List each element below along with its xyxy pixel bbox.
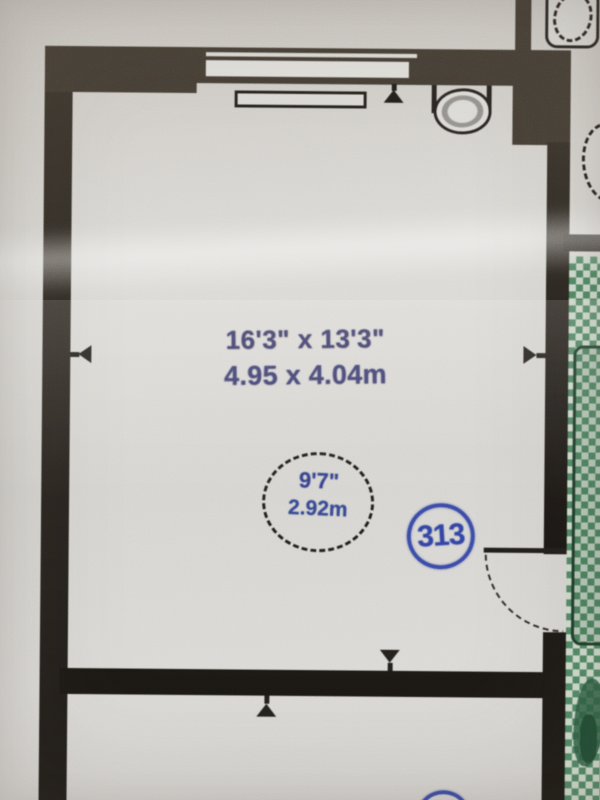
- radiator-icon: [235, 90, 367, 108]
- dark-tile-patch-inner: [580, 714, 597, 762]
- wall-marker-top-icon: [384, 90, 404, 103]
- floorplan-drawing: 16'3" x 13'3" 4.95 x 4.04m 9'7" 2.92m 31…: [0, 0, 600, 800]
- wall-marker-left-icon: [78, 345, 91, 363]
- tiled-floor: [564, 256, 600, 800]
- right-wall-lower: [541, 632, 566, 800]
- feature-dimensions-metric: 2.92m: [264, 495, 371, 524]
- floorplan-photo: 16'3" x 13'3" 4.95 x 4.04m 9'7" 2.92m 31…: [0, 0, 600, 800]
- wash-basin-icon: [432, 87, 493, 136]
- wall-marker-bottom-inner-icon: [380, 650, 400, 663]
- top-right-corner-wall: [512, 50, 571, 146]
- feature-dimensions-imperial: 9'7": [266, 466, 373, 497]
- dimensions-metric: 4.95 x 4.04m: [200, 359, 410, 392]
- adjacent-room-number-badge-partial: [416, 790, 470, 800]
- top-wall-left-section: [45, 46, 197, 93]
- room-dimensions-label: 16'3" x 13'3" 4.95 x 4.04m: [200, 323, 411, 392]
- wall-marker-bottom-outer-stem: [264, 696, 269, 704]
- wall-marker-right-stem: [536, 353, 545, 358]
- wall-marker-right-icon: [523, 346, 536, 364]
- room-number-badge: 313: [405, 501, 477, 571]
- right-stub-wall: [563, 234, 600, 251]
- window-icon: [206, 60, 409, 78]
- door-swing-arc: [484, 553, 564, 633]
- bottom-wall: [59, 668, 562, 698]
- wall-marker-bottom-inner-stem: [388, 663, 393, 671]
- door-swing-arc-circle: [484, 553, 564, 633]
- feature-dimensions-circle: 9'7" 2.92m: [260, 450, 376, 555]
- bath-icon: [571, 345, 600, 645]
- room-number: 313: [416, 518, 465, 555]
- adjacent-toilet-icon: [578, 120, 600, 205]
- upper-partition-wall: [515, 0, 532, 52]
- wall-marker-bottom-outer-icon: [256, 704, 276, 717]
- dimensions-imperial: 16'3" x 13'3": [200, 323, 410, 356]
